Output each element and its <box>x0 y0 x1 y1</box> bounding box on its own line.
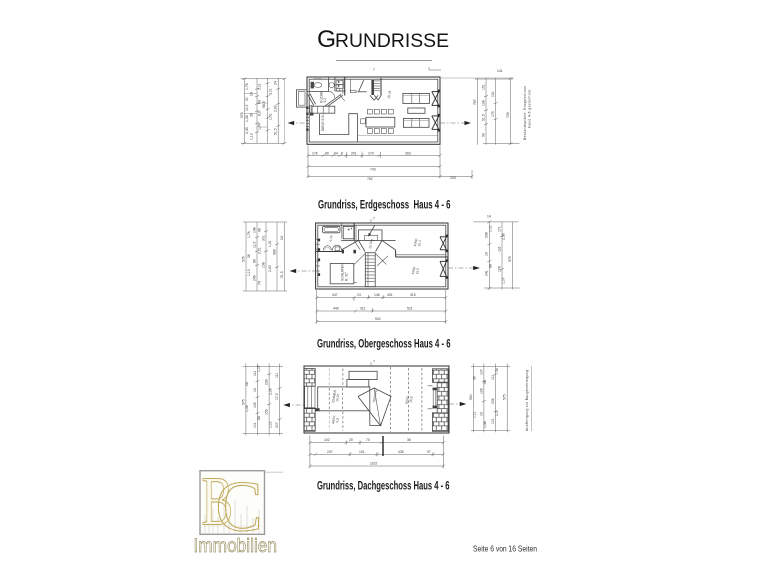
svg-text:8: 8 <box>341 152 343 156</box>
svg-text:176: 176 <box>312 152 318 156</box>
svg-text:576: 576 <box>240 112 244 118</box>
svg-text:138: 138 <box>481 100 485 106</box>
svg-text:1,01: 1,01 <box>489 225 493 232</box>
svg-text:298: 298 <box>485 232 489 238</box>
svg-text:111: 111 <box>491 375 495 380</box>
svg-text:1,76: 1,76 <box>245 83 249 90</box>
svg-text:98,9: 98,9 <box>262 101 266 108</box>
svg-text:101: 101 <box>491 418 495 424</box>
svg-text:141: 141 <box>497 69 503 73</box>
svg-text:Immobilien: Immobilien <box>194 535 278 557</box>
svg-text:2,36: 2,36 <box>501 233 505 240</box>
svg-text:86: 86 <box>252 259 256 263</box>
svg-text:2,49: 2,49 <box>245 127 249 134</box>
svg-text:20: 20 <box>349 438 353 442</box>
svg-text:24: 24 <box>250 92 254 96</box>
svg-text:575: 575 <box>508 256 512 262</box>
svg-text:Ausfertigung zur Baugenehmigun: Ausfertigung zur Baugenehmigung <box>525 369 529 431</box>
svg-text:241: 241 <box>485 270 489 276</box>
svg-text:3,01: 3,01 <box>268 88 272 95</box>
svg-text:1,36: 1,36 <box>245 405 249 412</box>
svg-text:89: 89 <box>325 152 329 156</box>
svg-text:101: 101 <box>253 422 257 428</box>
svg-text:247: 247 <box>327 450 333 454</box>
svg-text:178: 178 <box>497 266 501 272</box>
svg-text:401: 401 <box>387 293 393 297</box>
svg-text:RUNDRISSE: RUNDRISSE <box>335 30 449 52</box>
svg-text:311: 311 <box>360 307 366 311</box>
svg-text:8,9: 8,9 <box>258 111 262 116</box>
svg-text:236: 236 <box>265 379 269 385</box>
svg-text:24: 24 <box>280 236 284 240</box>
svg-text:70: 70 <box>366 438 370 442</box>
svg-text:560: 560 <box>469 394 473 400</box>
svg-text:449: 449 <box>333 307 339 311</box>
svg-text:11,5: 11,5 <box>252 242 256 248</box>
svg-text:51,5: 51,5 <box>280 271 284 278</box>
svg-text:521: 521 <box>407 307 413 311</box>
svg-text:17,5: 17,5 <box>275 393 279 400</box>
svg-text:Haus 4-6 gezeichnet: Haus 4-6 gezeichnet <box>528 89 532 128</box>
svg-text:1,13: 1,13 <box>250 133 254 140</box>
svg-text:2,36: 2,36 <box>268 388 272 395</box>
svg-text:1,51: 1,51 <box>268 240 272 247</box>
svg-text:36: 36 <box>250 113 254 117</box>
svg-text:88: 88 <box>489 264 493 268</box>
svg-text:151: 151 <box>481 84 485 90</box>
svg-text:762: 762 <box>367 177 373 181</box>
svg-text:1,76: 1,76 <box>247 231 251 238</box>
svg-text:G: G <box>317 26 336 53</box>
svg-text:146: 146 <box>374 293 380 297</box>
svg-text:28: 28 <box>245 382 249 386</box>
svg-text:DIELE 6,51: DIELE 6,51 <box>321 114 325 131</box>
svg-text:576: 576 <box>242 256 246 262</box>
svg-text:24: 24 <box>357 293 361 297</box>
svg-text:1,11: 1,11 <box>473 412 477 418</box>
svg-text:36: 36 <box>247 254 251 258</box>
svg-text:98: 98 <box>257 228 261 232</box>
svg-text:107: 107 <box>479 369 483 375</box>
svg-text:447: 447 <box>332 293 338 297</box>
svg-text:74: 74 <box>257 281 261 285</box>
svg-text:1102: 1102 <box>370 462 377 466</box>
svg-text:16: 16 <box>253 388 257 392</box>
svg-text:151: 151 <box>491 91 495 97</box>
svg-text:36: 36 <box>495 368 499 372</box>
svg-text:2,01: 2,01 <box>257 247 261 254</box>
svg-text:767: 767 <box>473 99 477 105</box>
svg-text:Grundriss, Erdgeschoss Haus 4: Grundriss, Erdgeschoss Haus 4 - 6 <box>318 199 451 212</box>
svg-text:307: 307 <box>275 422 279 428</box>
svg-text:201: 201 <box>351 152 357 156</box>
svg-text:99: 99 <box>481 133 485 137</box>
svg-text:1,01: 1,01 <box>268 421 272 428</box>
svg-text:51,5: 51,5 <box>481 114 485 121</box>
svg-text:148: 148 <box>252 227 256 233</box>
svg-text:174: 174 <box>368 152 374 156</box>
svg-text:1,51: 1,51 <box>268 113 272 120</box>
svg-text:7: 7 <box>373 68 375 72</box>
svg-text:263: 263 <box>405 152 411 156</box>
svg-text:Seite 6 von 16 Seiten: Seite 6 von 16 Seiten <box>473 544 537 554</box>
svg-text:575: 575 <box>503 394 507 400</box>
svg-text:2,0: 2,0 <box>495 411 499 416</box>
svg-text:236: 236 <box>491 398 495 404</box>
svg-text:96: 96 <box>473 376 477 380</box>
svg-text:16: 16 <box>485 252 489 256</box>
svg-text:989: 989 <box>272 249 276 255</box>
svg-text:1,74: 1,74 <box>258 123 262 130</box>
svg-text:88: 88 <box>257 416 261 420</box>
svg-text:575: 575 <box>241 399 245 405</box>
svg-text:902: 902 <box>375 317 381 321</box>
svg-text:126: 126 <box>479 388 483 394</box>
svg-text:Grundriss, Obergeschoss Haus 4: Grundriss, Obergeschoss Haus 4 - 6 <box>317 338 451 351</box>
svg-text:739: 739 <box>506 112 510 118</box>
svg-text:7: 7 <box>373 217 375 221</box>
svg-text:58: 58 <box>483 380 487 384</box>
svg-text:51,5: 51,5 <box>273 128 277 135</box>
svg-text:1,48: 1,48 <box>483 421 487 428</box>
svg-text:11,5: 11,5 <box>245 105 249 111</box>
svg-text:1,07: 1,07 <box>501 277 505 284</box>
svg-text:Grundriss, Dachgeschoss Haus 4: Grundriss, Dachgeschoss Haus 4 - 6 <box>317 479 450 492</box>
svg-text:4,9: 4,9 <box>335 418 340 423</box>
svg-text:1,07: 1,07 <box>257 365 261 372</box>
svg-text:743: 743 <box>370 167 376 171</box>
svg-text:175: 175 <box>491 111 495 117</box>
svg-text:1,13: 1,13 <box>247 269 251 276</box>
svg-text:97: 97 <box>427 450 431 454</box>
svg-text:1,38: 1,38 <box>245 115 249 122</box>
svg-text:138: 138 <box>261 262 265 268</box>
svg-text:243: 243 <box>450 176 456 180</box>
svg-text:126: 126 <box>253 402 257 408</box>
svg-text:111: 111 <box>275 373 279 378</box>
svg-text:2,63: 2,63 <box>273 105 277 112</box>
svg-text:171: 171 <box>497 226 501 232</box>
svg-text:16: 16 <box>479 412 483 416</box>
svg-text:315: 315 <box>410 293 416 297</box>
svg-text:249: 249 <box>252 275 256 281</box>
svg-text:64: 64 <box>334 152 338 156</box>
svg-text:116: 116 <box>497 246 501 252</box>
svg-text:2,63: 2,63 <box>268 265 272 272</box>
svg-text:5,2: 5,2 <box>323 98 327 103</box>
svg-text:30: 30 <box>245 97 249 101</box>
svg-text:7: 7 <box>373 360 375 364</box>
svg-text:301: 301 <box>261 235 265 241</box>
svg-text:102: 102 <box>324 438 330 442</box>
svg-text:159: 159 <box>265 409 269 415</box>
svg-text:Bestandspläne. Erdgeschoss: Bestandspläne. Erdgeschoss <box>523 86 527 140</box>
svg-text:101: 101 <box>359 450 365 454</box>
svg-text:2,01: 2,01 <box>258 83 262 90</box>
svg-text:36: 36 <box>407 438 411 442</box>
svg-text:435: 435 <box>398 450 404 454</box>
svg-text:R. 92°: R. 92° <box>345 271 349 281</box>
svg-text:24: 24 <box>273 81 277 85</box>
svg-text:14: 14 <box>487 215 491 219</box>
